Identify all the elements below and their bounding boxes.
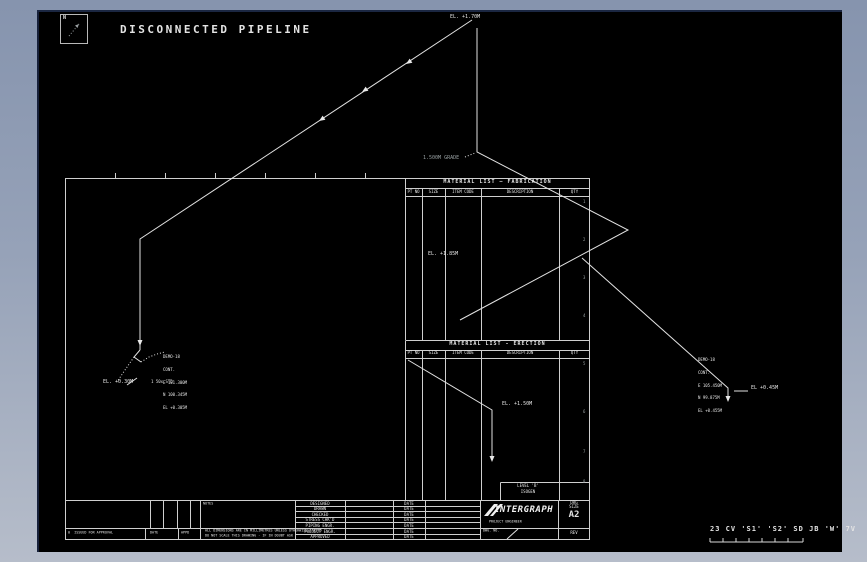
- note-line: EL +0.455M: [698, 409, 722, 413]
- note-line: CONT.: [163, 368, 187, 372]
- fab-col-ptno: PT NO: [405, 190, 422, 194]
- dwg-no-label: DWG. NO.: [483, 529, 499, 533]
- scale-ruler-ticks: [710, 538, 803, 542]
- ere-col-size: SIZE: [422, 351, 445, 355]
- note-line: N 100.345M: [163, 393, 187, 397]
- note-line: EL +0.305M: [163, 406, 187, 410]
- zone-digit: 4: [583, 314, 585, 318]
- zone-digit: 6: [583, 410, 585, 414]
- elevation-label-erection: EL. +1.50M: [502, 402, 532, 407]
- zone-digit: 3: [583, 276, 585, 280]
- level-line-1: LEVEL 'B': [503, 484, 553, 488]
- erection-table-title: MATERIAL LIST - ERECTION: [405, 342, 590, 347]
- left-leader-label: 1 50x STD: [151, 380, 173, 384]
- elevation-label-mid: EL. +1.85M: [428, 252, 458, 257]
- north-arrow-icon: [61, 15, 87, 43]
- dwg-no-slash: [507, 529, 518, 539]
- plot-stamp: 23 CV 'S1' 'S2' SD JB 'W' 7V: [710, 526, 856, 533]
- field-label: DATE: [395, 507, 423, 511]
- logo-subtext: PROJECT ENGINEER: [489, 520, 522, 524]
- right-connection-note: DEMO-18 CONT. E 105.450M N 99.875M EL +0…: [698, 350, 722, 421]
- level-line-2: ISOGEN: [503, 490, 553, 494]
- fabrication-table-title: MATERIAL LIST — FABRICATION: [405, 180, 590, 185]
- fabrication-table-grid: [406, 179, 591, 341]
- grade-label: 1.500M GRADE: [423, 156, 459, 161]
- note-line: N 99.875M: [698, 396, 722, 400]
- north-arrow-box: N: [60, 14, 88, 44]
- pipeline-linework: [37, 10, 842, 552]
- sheet-size: A2: [560, 511, 588, 520]
- zone-digit: 2: [583, 238, 585, 242]
- fab-col-itemcode: ITEM CODE: [445, 190, 481, 194]
- ere-col-qty: QTY: [559, 351, 590, 355]
- fab-col-qty: QTY: [559, 190, 590, 194]
- zone-digit: 7: [583, 450, 585, 454]
- note-line: DEMO-18: [698, 358, 722, 362]
- rev-label: REV: [560, 531, 588, 535]
- zone-digit: 5: [583, 362, 585, 366]
- desktop-backdrop: N DISCONNECTED PIPELINE EL. +1.70M 1.500…: [0, 0, 867, 562]
- revision-description: 0 ISSUED FOR APPROVAL: [68, 531, 113, 535]
- field-label: PIPING ENGR.: [297, 524, 343, 528]
- ere-col-description: DESCRIPTION: [481, 351, 559, 355]
- zone-digit: 1: [583, 200, 585, 204]
- note-line: CONT.: [698, 371, 722, 375]
- elevation-label-top: EL. +1.70M: [450, 15, 480, 20]
- zone-digit: 8: [583, 480, 585, 484]
- size-label-2: SIZE: [560, 505, 588, 509]
- field-label: DATE: [395, 535, 423, 539]
- notes-line-2: DO NOT SCALE THIS DRAWING - IF IN DOUBT …: [205, 534, 293, 538]
- erection-table-grid: [406, 341, 591, 501]
- drawing-canvas: N DISCONNECTED PIPELINE EL. +1.70M 1.500…: [37, 10, 842, 552]
- field-label: STRESS CHK'D: [297, 518, 343, 522]
- field-label: DATE: [395, 524, 423, 528]
- ere-col-ptno: PT NO: [405, 351, 422, 355]
- ere-col-itemcode: ITEM CODE: [445, 351, 481, 355]
- flow-arrow-icon: [138, 59, 731, 462]
- revision-appd-header: APPD: [181, 531, 189, 535]
- elevation-label-left: EL. +0.30M: [103, 380, 133, 385]
- field-label: DATE: [395, 518, 423, 522]
- note-line: DEMO-18: [163, 355, 187, 359]
- revision-date-header: DATE: [150, 531, 158, 535]
- right-leader-label: EL +0.45M: [751, 386, 778, 391]
- note-line: E 105.450M: [698, 384, 722, 388]
- field-label: APPROVED: [297, 535, 343, 539]
- pipeline-runs: [117, 20, 748, 458]
- fab-col-size: SIZE: [422, 190, 445, 194]
- intergraph-logo-text: INTERGRAPH: [494, 506, 553, 515]
- fab-col-description: DESCRIPTION: [481, 190, 559, 194]
- drawing-title: DISCONNECTED PIPELINE: [120, 24, 312, 36]
- notes-label: NOTES: [203, 502, 213, 506]
- field-label: DRAWN: [297, 507, 343, 511]
